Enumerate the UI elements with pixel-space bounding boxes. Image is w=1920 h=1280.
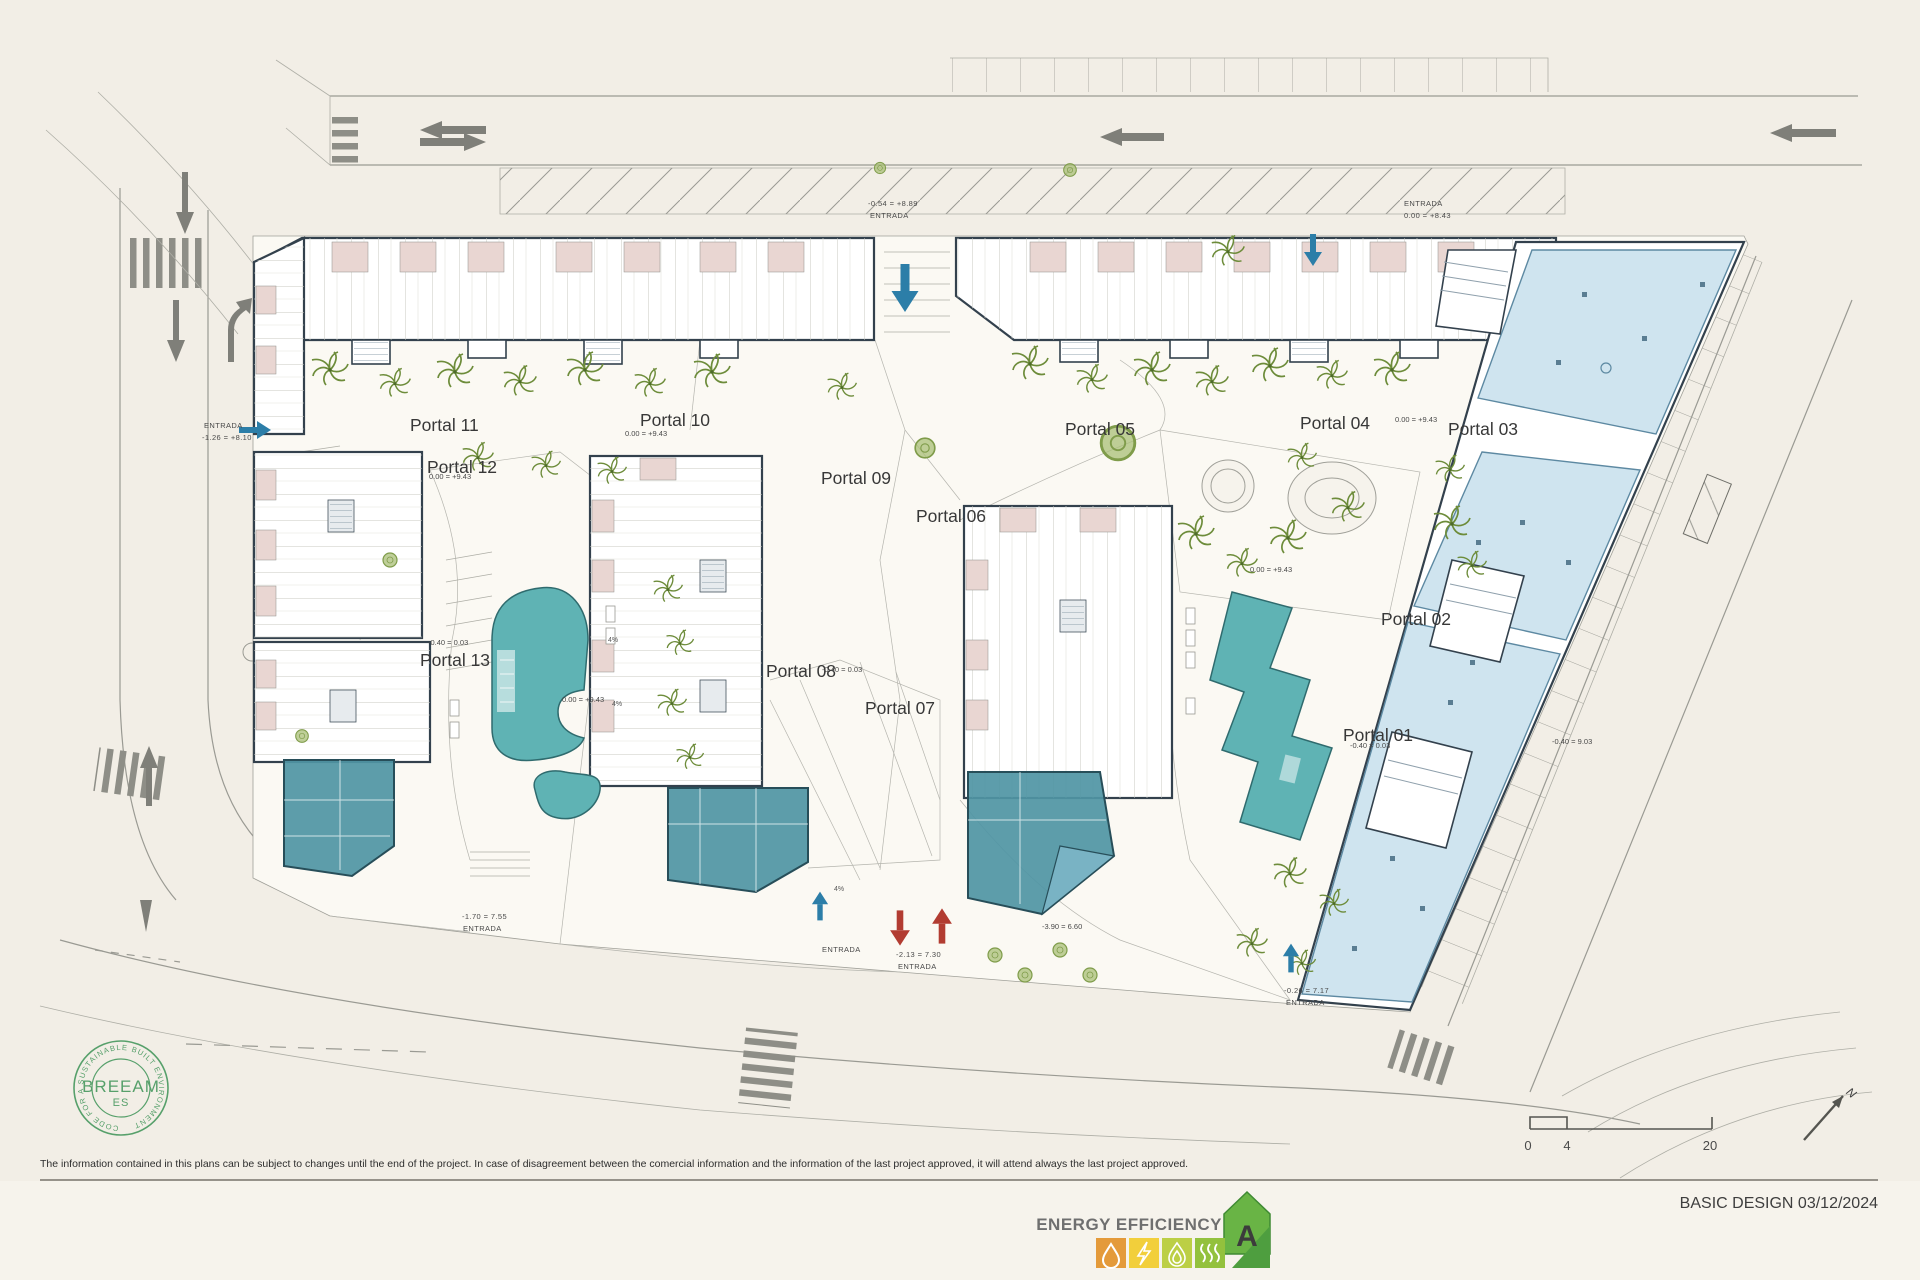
slope-label: 4% (834, 886, 844, 893)
svg-text:0.00 = +8.43: 0.00 = +8.43 (1404, 211, 1451, 220)
elevation-label: -0.40 = 0.03 (822, 665, 862, 674)
scale-tick: 0 (1524, 1138, 1531, 1153)
footer: The information contained in this plans … (0, 1158, 1920, 1280)
portal-label: Portal 10 (640, 410, 710, 430)
svg-text:-1.26 = +8.10: -1.26 = +8.10 (202, 433, 252, 442)
portal-label: Portal 03 (1448, 419, 1518, 439)
breeam-region: ES (113, 1097, 130, 1109)
svg-text:-0.26 = 7.17: -0.26 = 7.17 (1284, 986, 1329, 995)
elevation-label: 0.00 = +9.43 (625, 429, 667, 438)
scale-tick: 4 (1563, 1138, 1570, 1153)
pool-lane (497, 650, 515, 712)
elevation-label: 0.00 = +9.43 (429, 472, 471, 481)
elevation-label: -0.40 = 9.03 (1552, 737, 1592, 746)
site-plan-canvas: Portal 11 Portal 10 Portal 12 Portal 13 … (0, 0, 1920, 1280)
slope-label: 4% (612, 701, 622, 708)
portal-label: Portal 11 (410, 415, 479, 435)
top-parking-row (950, 58, 1546, 92)
basic-design-stamp: BASIC DESIGN 03/12/2024 (1680, 1195, 1878, 1212)
svg-text:-1.70 = 7.55: -1.70 = 7.55 (462, 912, 507, 921)
elevation-label: 0.00 = +9.43 (562, 695, 604, 704)
slope-label: 4% (608, 637, 618, 644)
electricity-icon (1129, 1238, 1159, 1268)
energy-label: ENERGY EFFICIENCY (1036, 1215, 1222, 1234)
svg-text:-2.13 = 7.30: -2.13 = 7.30 (896, 950, 941, 959)
north-arrow-icon: N (1793, 1085, 1859, 1150)
portal-label: Portal 13 (420, 650, 490, 670)
svg-text:ENTRADA: ENTRADA (463, 924, 502, 933)
breeam-name: BREEAM (82, 1077, 160, 1096)
commercial-unit (284, 760, 394, 876)
portal-label: Portal 06 (916, 506, 986, 526)
svg-text:ENTRADA: ENTRADA (1404, 199, 1443, 208)
portal-label: Portal 05 (1065, 419, 1135, 439)
elevation-label: 0.00 = +9.43 (1395, 415, 1437, 424)
crosswalk (1387, 1029, 1458, 1086)
portal-label: Portal 02 (1381, 609, 1451, 629)
lane-dashes (186, 1044, 428, 1052)
portal-label: Portal 09 (821, 468, 891, 488)
disclaimer-text: The information contained in this plans … (40, 1158, 1188, 1170)
traffic-island (1683, 474, 1731, 543)
north-label: N (1844, 1085, 1860, 1102)
building-portal-12 (254, 452, 422, 638)
svg-text:ENTRADA: ENTRADA (204, 421, 243, 430)
yield-triangle (140, 900, 152, 932)
portal-label: Portal 07 (865, 698, 935, 718)
scale-bar: 0 4 20 (1524, 1117, 1717, 1153)
elevation-label: -0.40 = 0.03 (428, 638, 468, 647)
scale-tick: 20 (1703, 1138, 1717, 1153)
elevation-label: 0.00 = +9.43 (1250, 565, 1292, 574)
svg-text:-0.54 = +8.89: -0.54 = +8.89 (868, 199, 918, 208)
svg-text:ENTRADA: ENTRADA (870, 211, 909, 220)
crosswalk (332, 112, 358, 164)
svg-text:ENTRADA: ENTRADA (898, 962, 937, 971)
svg-text:ENTRADA: ENTRADA (1286, 998, 1325, 1007)
site-plan-sheet: Portal 11 Portal 10 Portal 12 Portal 13 … (0, 0, 1920, 1280)
crosswalk (738, 1027, 798, 1108)
crosswalk (93, 747, 168, 800)
elevation-label: -3.90 = 6.60 (1042, 922, 1082, 931)
svg-text:ENTRADA: ENTRADA (822, 945, 861, 954)
portal-label: Portal 04 (1300, 413, 1370, 433)
entrance-label: ENTRADA (822, 945, 861, 954)
breeam-stamp: CODE FOR A SUSTAINABLE BUILT ENVIRONMENT… (74, 1041, 168, 1135)
energy-rating: A (1236, 1220, 1258, 1253)
elevation-label: -0.40 = 0.03 (1350, 741, 1390, 750)
crosswalk (124, 238, 208, 288)
